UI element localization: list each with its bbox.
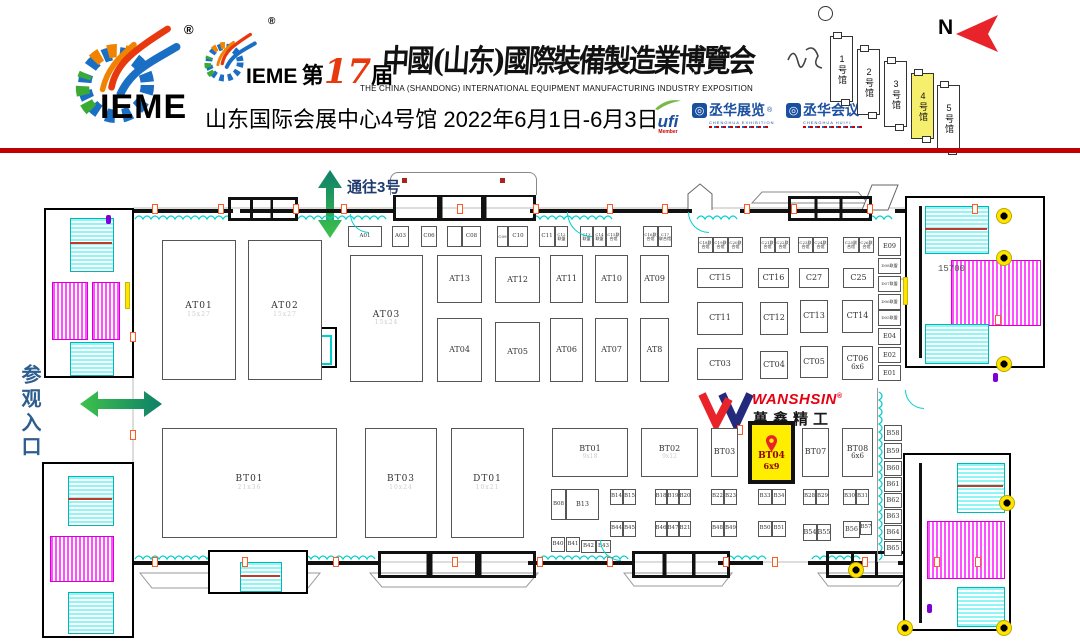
yellow-bar-marker xyxy=(125,282,130,309)
entrance-arrow-icon xyxy=(80,391,162,417)
booth-BT04: BT046x9 xyxy=(748,421,795,484)
booth-C21联合馆: C21联合馆 xyxy=(760,237,775,253)
door-marker xyxy=(242,557,248,567)
booth-C10: C10 xyxy=(508,226,528,247)
booth-B50: B50 xyxy=(758,521,772,537)
booth-B23: B23 xyxy=(724,489,737,505)
booth-B20: B20 xyxy=(679,489,691,505)
purple-marker xyxy=(927,604,932,613)
booth-AT03: AT0315x24 xyxy=(350,255,423,382)
booth-E09: E09 xyxy=(878,237,901,256)
roof-marker xyxy=(402,178,407,183)
booth-AT12: AT12 xyxy=(495,257,540,303)
booth-CT05: CT05 xyxy=(800,346,828,378)
booth-B13: B13 xyxy=(566,489,599,520)
booth-AT02: AT0215x27 xyxy=(248,240,322,380)
column-marker xyxy=(897,620,913,636)
booth-AT07: AT07 xyxy=(595,318,628,382)
booth-CT06: CT066x6 xyxy=(842,346,873,380)
booth-BT08: BT086x6 xyxy=(842,428,873,477)
entrance-structure xyxy=(228,197,298,221)
booth-BT01: BT019x18 xyxy=(552,428,628,477)
booth-CT15: CT15 xyxy=(697,268,743,288)
booth-D08联盟: D08联盟 xyxy=(878,258,901,274)
booth-CT04: CT04 xyxy=(760,351,788,379)
booth-B56: B56 xyxy=(843,521,860,538)
service-building-northwest xyxy=(44,208,134,378)
door-marker xyxy=(867,204,873,214)
booth-B60: B60 xyxy=(884,461,902,476)
booth-CT03: CT03 xyxy=(697,348,743,380)
door-marker xyxy=(533,204,539,214)
booth-C22联合馆: C22联合馆 xyxy=(775,237,790,253)
door-marker xyxy=(130,430,136,440)
booth-B31: B31 xyxy=(856,489,869,505)
door-marker xyxy=(130,332,136,342)
entrance-structure xyxy=(788,196,872,221)
door-marker xyxy=(975,557,981,567)
booth-B18: B18 xyxy=(655,489,667,505)
entrance-roof xyxy=(390,172,537,195)
booth-B15: B15 xyxy=(623,489,636,505)
booth-AT06: AT06 xyxy=(550,318,583,382)
column-marker xyxy=(996,356,1012,372)
booth-B48: B48 xyxy=(711,521,724,537)
booth-E02: E02 xyxy=(878,347,901,363)
booth-C17联合馆: C17联合馆 xyxy=(658,226,672,247)
booth-C23联合馆: C23联合馆 xyxy=(798,237,813,253)
booth-B29: B29 xyxy=(816,489,829,505)
purple-marker xyxy=(106,215,111,224)
door-marker xyxy=(791,204,797,214)
yellow-bar-marker xyxy=(903,277,908,305)
column-marker xyxy=(999,495,1015,511)
booth-BT03: BT03 xyxy=(711,428,738,477)
dimension-label: 15700 xyxy=(938,264,965,274)
door-marker xyxy=(152,557,158,567)
roof-marker xyxy=(500,178,505,183)
booth-C09: C09 xyxy=(497,226,508,247)
column-marker xyxy=(996,620,1012,636)
booth-AT04: AT04 xyxy=(437,318,482,382)
floorplan-poster: IEME ® ® IEME 第17届 中國(山东)國際裝備製造業博覽会 THE … xyxy=(0,0,1080,642)
booth-A03: A03 xyxy=(392,226,409,247)
booth-B22: B22 xyxy=(711,489,724,505)
door-marker xyxy=(537,557,543,567)
booth-B44: B44 xyxy=(610,521,623,537)
service-building-northeast xyxy=(905,196,1045,368)
booth-B61: B61 xyxy=(884,477,902,492)
booth-B62: B62 xyxy=(884,493,902,508)
booth-B47: B47 xyxy=(667,521,679,537)
location-pin-icon xyxy=(765,435,778,452)
column-marker xyxy=(848,562,864,578)
booth-B51: B51 xyxy=(772,521,786,537)
booth-AT10: AT10 xyxy=(595,255,628,303)
booth-C16联合馆: C16联合馆 xyxy=(643,226,658,247)
booth-B33: B33 xyxy=(758,489,772,505)
door-marker xyxy=(293,204,299,214)
door-marker xyxy=(152,204,158,214)
booth-CT14: CT14 xyxy=(842,300,873,333)
booth-BT02: BT029x12 xyxy=(641,428,698,477)
booth-E01: E01 xyxy=(878,365,901,381)
door-marker xyxy=(972,204,978,214)
purple-marker xyxy=(993,373,998,382)
booth-B54: B54 xyxy=(803,524,817,541)
booth-unlabeled xyxy=(447,226,462,247)
booth-C26联合馆: C26联合馆 xyxy=(859,237,874,253)
booth-B58: B58 xyxy=(884,425,902,441)
booth-E04: E04 xyxy=(878,328,901,345)
service-building-southwest xyxy=(42,462,134,638)
booth-B64: B64 xyxy=(884,525,902,540)
booth-C19联合馆: C19联合馆 xyxy=(713,237,728,253)
booth-C20联合馆: C20联合馆 xyxy=(728,237,743,253)
column-marker xyxy=(996,250,1012,266)
booth-B19: B19 xyxy=(667,489,679,505)
visitor-entrance-label: 参观入口 xyxy=(20,364,44,460)
booth-B41: B41 xyxy=(566,537,580,552)
booth-C08: C08 xyxy=(462,226,481,247)
booth-CT16: CT16 xyxy=(758,268,789,288)
booth-AT13: AT13 xyxy=(437,255,482,303)
to-hall3-arrow-icon xyxy=(318,170,342,238)
door-marker xyxy=(995,315,1001,325)
booth-AT11: AT11 xyxy=(550,255,583,303)
booth-C15联合馆: C15联合馆 xyxy=(606,226,621,247)
door-marker xyxy=(333,557,339,567)
booth-BT01: BT0121x36 xyxy=(162,428,337,538)
booth-C14联盟: C14联盟 xyxy=(593,226,606,247)
booth-B28: B28 xyxy=(803,489,816,505)
booth-C25联合馆: C25联合馆 xyxy=(843,237,859,253)
door-marker xyxy=(607,204,613,214)
booth-C11: C11 xyxy=(539,226,555,247)
booth-B21: B21 xyxy=(679,521,691,537)
booth-AT05: AT05 xyxy=(495,322,540,382)
booth-B63: B63 xyxy=(884,509,902,524)
door-marker xyxy=(457,204,463,214)
to-hall3-label: 通往3号 xyxy=(347,176,400,197)
booth-AT01: AT0115x27 xyxy=(162,240,236,380)
wanshsin-logo-mark-icon xyxy=(702,394,750,424)
booth-B65: B65 xyxy=(884,541,902,556)
booth-C12联盟: C12联盟 xyxy=(555,226,568,247)
service-building-south xyxy=(208,550,308,594)
booth-AT09: AT09 xyxy=(640,255,669,303)
booth-C27: C27 xyxy=(799,268,829,288)
booth-BT03: BT0310x24 xyxy=(365,428,437,538)
door-marker xyxy=(772,557,778,567)
door-marker xyxy=(218,204,224,214)
booth-B42: B42 xyxy=(581,540,596,553)
booth-B34: B34 xyxy=(772,489,786,505)
door-marker xyxy=(934,557,940,567)
booth-B59: B59 xyxy=(884,443,902,459)
booth-CT11: CT11 xyxy=(697,302,743,335)
signature-scribble xyxy=(788,48,822,68)
booth-B45: B45 xyxy=(623,521,636,537)
wanshsin-wordmark: WANSHSIN® xyxy=(752,391,843,408)
booth-B14: B14 xyxy=(610,489,623,505)
door-marker xyxy=(662,204,668,214)
booth-DT01: DT0110x21 xyxy=(451,428,524,538)
booth-B40: B40 xyxy=(551,537,565,552)
booth-BT07: BT07 xyxy=(802,428,829,477)
booth-B49: B49 xyxy=(724,521,737,537)
booth-CT12: CT12 xyxy=(760,302,788,335)
booth-D05联盟: D05联盟 xyxy=(878,310,901,326)
wall-segment xyxy=(528,561,632,565)
entrance-structure-main-north xyxy=(393,194,536,221)
door-marker xyxy=(723,557,729,567)
booth-C06: C06 xyxy=(421,226,437,247)
booth-C18联合馆: C18联合馆 xyxy=(698,237,713,253)
booth-D07联盟: D07联盟 xyxy=(878,276,901,292)
booth-CT13: CT13 xyxy=(800,300,828,333)
booth-B08: B08 xyxy=(551,489,566,520)
entrance-structure-south xyxy=(632,551,730,578)
booth-B55: B55 xyxy=(817,524,831,541)
booth-D06联盟: D06联盟 xyxy=(878,294,901,310)
door-marker xyxy=(744,204,750,214)
booth-B57: B57 xyxy=(860,521,872,535)
booth-AT8: AT8 xyxy=(640,318,669,382)
service-building-southeast xyxy=(903,453,1011,631)
column-marker xyxy=(996,208,1012,224)
door-marker xyxy=(452,557,458,567)
corridor-line xyxy=(877,388,878,562)
booth-C24联合馆: C24联合馆 xyxy=(813,237,828,253)
door-marker xyxy=(341,204,347,214)
booth-B46: B46 xyxy=(655,521,667,537)
booth-C25: C25 xyxy=(843,268,874,288)
booth-B30: B30 xyxy=(843,489,856,505)
